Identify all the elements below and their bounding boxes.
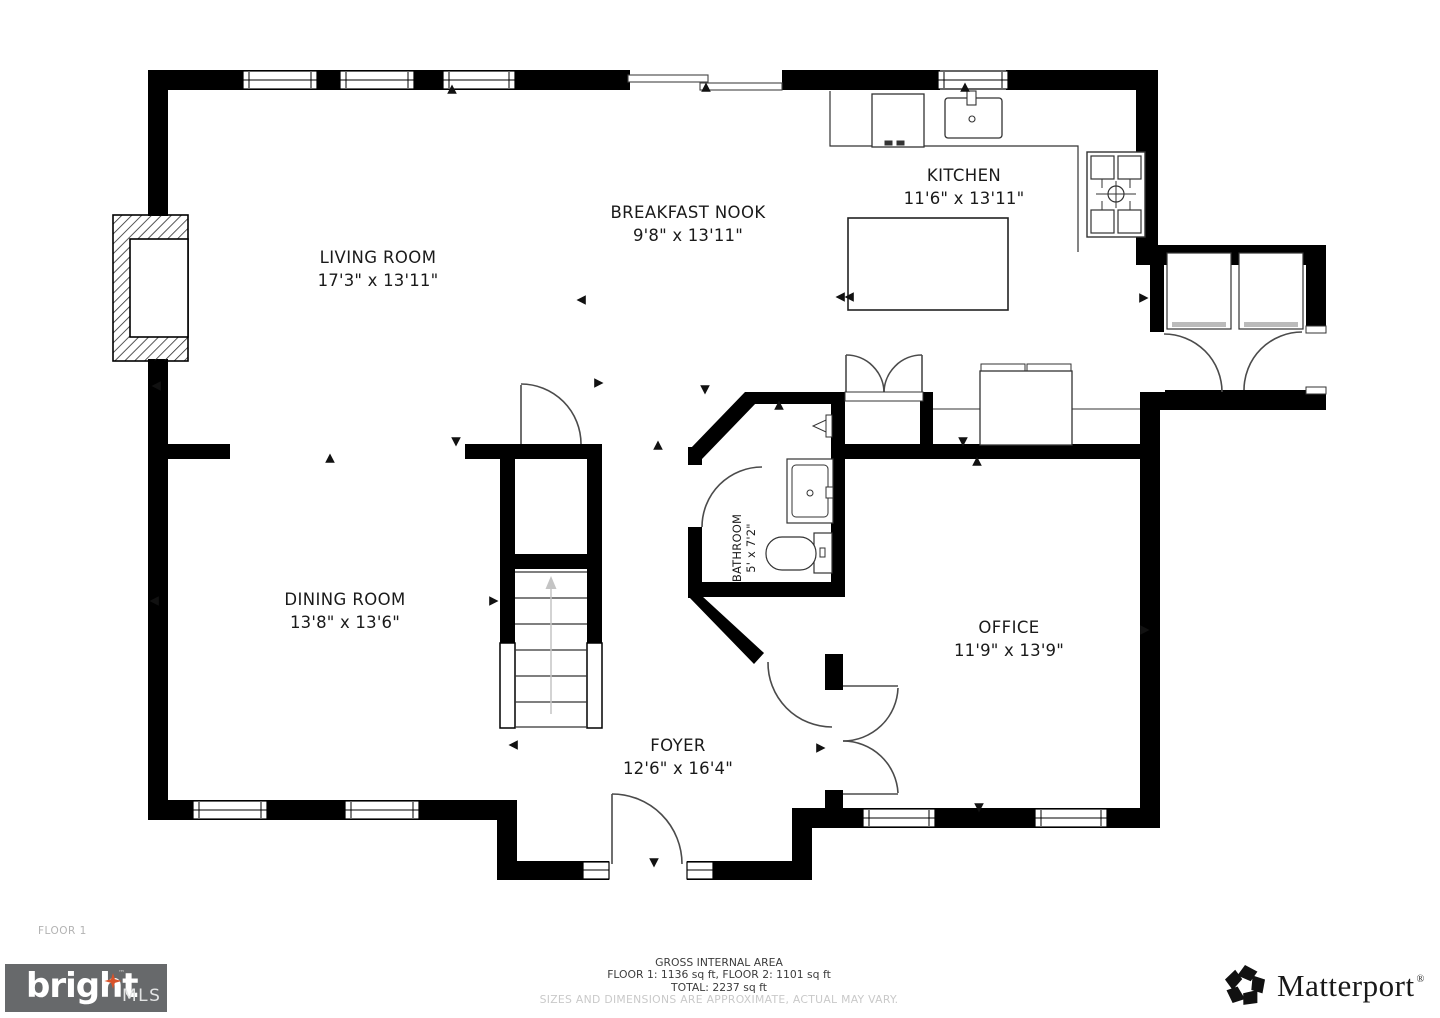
area-disclaimer: SIZES AND DIMENSIONS ARE APPROXIMATE, AC… — [540, 994, 899, 1006]
room-label-dining-room: DINING ROOM 13'8" x 13'6" — [284, 588, 405, 634]
room-dims: 17'3" x 13'11" — [318, 269, 439, 292]
room-dims: 5' x 7'2" — [744, 514, 758, 582]
floorplan-page: LIVING ROOM 17'3" x 13'11" BREAKFAST NOO… — [0, 0, 1440, 1018]
mudroom-left-door-icon — [1164, 334, 1222, 392]
room-label-foyer: FOYER 12'6" x 16'4" — [623, 734, 733, 780]
room-label-living-room: LIVING ROOM 17'3" x 13'11" — [318, 246, 439, 292]
stove-icon — [1087, 152, 1145, 237]
kitchen-island — [848, 218, 1008, 310]
room-label-kitchen: KITCHEN 11'6" x 13'11" — [904, 164, 1025, 210]
room-name: DINING ROOM — [284, 588, 405, 611]
bright-tm: ™ — [118, 969, 125, 977]
scan-marker — [489, 596, 498, 606]
scan-marker — [594, 378, 603, 388]
toilet-icon — [766, 533, 832, 573]
matterport-wordmark: Matterport® — [1277, 968, 1425, 1004]
washer-icon — [1167, 253, 1231, 329]
room-name: LIVING ROOM — [318, 246, 439, 269]
hall-fixtures — [933, 364, 1140, 445]
dishwasher-icon — [872, 94, 924, 147]
matterport-reg: ® — [1417, 974, 1425, 985]
room-dims: 11'6" x 13'11" — [904, 187, 1025, 210]
room-dims: 13'8" x 13'6" — [284, 611, 405, 634]
front-door-icon — [612, 794, 682, 864]
mudroom-right-door-icon — [1244, 332, 1302, 390]
floor-tag: FLOOR 1 — [38, 925, 87, 937]
foyer-hall-door-icon — [768, 662, 832, 727]
doors — [521, 332, 1302, 864]
room-name: KITCHEN — [904, 164, 1025, 187]
fireplace-icon — [113, 215, 188, 361]
scan-marker — [577, 295, 586, 305]
matterport-pinwheel-icon — [1223, 964, 1267, 1008]
floorplan-drawing — [0, 0, 1440, 1018]
room-name: BREAKFAST NOOK — [610, 201, 765, 224]
dryer-icon — [1239, 253, 1303, 329]
room-name: OFFICE — [954, 616, 1064, 639]
scan-marker — [325, 454, 335, 463]
room-label-bathroom: BATHROOM 5' x 7'2" — [730, 514, 758, 582]
office-double-doors-icon — [843, 686, 898, 794]
stairs-up-arrow-icon — [546, 576, 557, 714]
staircase — [500, 572, 602, 728]
scan-marker — [1139, 293, 1148, 303]
scan-marker — [451, 437, 461, 446]
bathroom-sink-icon — [787, 459, 833, 523]
bathroom-fixtures — [766, 415, 833, 573]
gross-area-block: GROSS INTERNAL AREA FLOOR 1: 1136 sq ft,… — [540, 957, 899, 1007]
matterport-logo: Matterport® — [1223, 963, 1425, 1009]
room-dims: 9'8" x 13'11" — [610, 224, 765, 247]
room-label-breakfast-nook: BREAKFAST NOOK 9'8" x 13'11" — [610, 201, 765, 247]
room-name: BATHROOM — [730, 514, 744, 582]
refrigerator-icon — [980, 364, 1072, 445]
walls — [148, 70, 1326, 880]
area-floors: FLOOR 1: 1136 sq ft, FLOOR 2: 1101 sq ft — [540, 969, 899, 981]
scan-marker — [700, 385, 710, 394]
room-dims: 11'9" x 13'9" — [954, 639, 1064, 662]
bright-mls-logo: bright ™ MLS — [5, 964, 167, 1012]
room-label-office: OFFICE 11'9" x 13'9" — [954, 616, 1064, 662]
scan-marker — [653, 441, 663, 450]
kitchen-sink-icon — [945, 91, 1002, 138]
back-french-doors-icon — [845, 355, 923, 401]
bright-mls-suffix: MLS — [122, 986, 161, 1006]
stair-door-icon — [521, 384, 581, 444]
shower-head-icon — [813, 415, 832, 437]
room-dims: 12'6" x 16'4" — [623, 757, 733, 780]
scan-marker — [509, 740, 518, 750]
room-name: FOYER — [623, 734, 733, 757]
scan-marker — [836, 292, 845, 302]
